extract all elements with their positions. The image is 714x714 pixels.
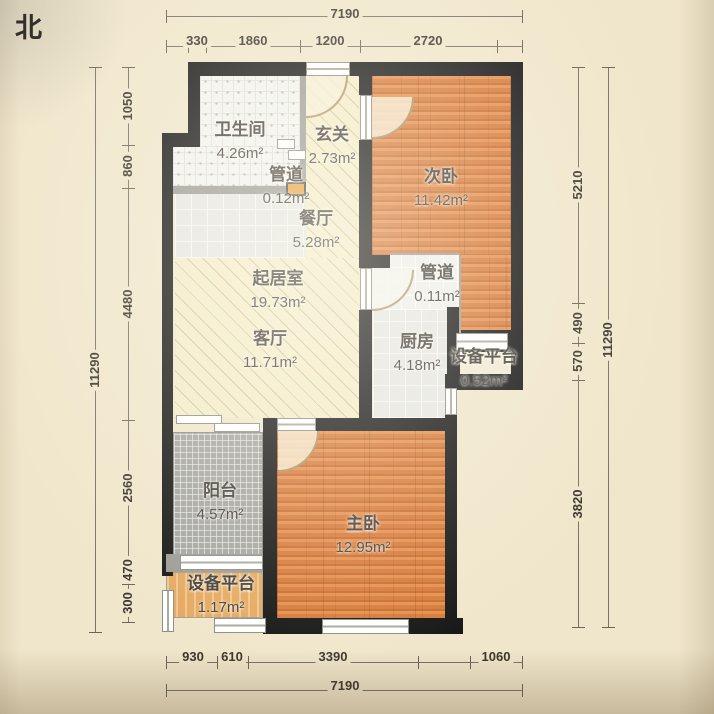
north-indicator: 北	[15, 6, 42, 45]
room-area: 0.52m²	[450, 373, 518, 388]
label-duct-top: 管道 0.12m²	[263, 166, 310, 206]
wall-right-upper	[511, 62, 523, 390]
dim-left-seg-4480: 4480	[121, 287, 135, 322]
label-platform-east: 设备平台 0.52m²	[450, 348, 518, 388]
dim-tick	[497, 40, 498, 53]
dim-tick	[122, 584, 135, 585]
dim-tick	[360, 40, 361, 53]
label-entry: 玄关 2.73m²	[309, 126, 356, 166]
dim-bottom-seg-610: 610	[218, 650, 246, 664]
label-bathroom: 卫生间 4.26m²	[215, 121, 266, 161]
entrance-door-leaf	[306, 62, 350, 76]
room-area: 0.12m²	[263, 191, 310, 206]
bedroom1-door-leaf	[277, 418, 316, 431]
dim-left-seg-300: 300	[121, 589, 135, 617]
wall-notch-step	[162, 133, 200, 147]
dim-tick	[602, 67, 615, 68]
wall-living-kitchen	[359, 310, 372, 420]
dim-tick	[122, 67, 135, 68]
label-platform-south: 设备平台 1.17m²	[187, 575, 255, 615]
room-area: 19.73m²	[250, 295, 305, 310]
dim-tick	[418, 656, 419, 669]
label-kitchen: 厨房 4.18m²	[394, 333, 441, 373]
wall-left	[162, 147, 173, 576]
platform-south-left-window	[162, 590, 174, 632]
dim-tick	[522, 40, 523, 53]
dim-tick	[166, 684, 167, 697]
dim-tick	[522, 10, 523, 23]
dim-tick	[572, 380, 585, 381]
dim-tick	[166, 40, 167, 53]
dim-tick	[166, 10, 167, 23]
room-area: 4.57m²	[197, 507, 244, 522]
room-area: 11.71m²	[243, 355, 297, 370]
floorplan-canvas: 北 卫生间	[0, 0, 714, 714]
dim-left-seg-line	[128, 67, 129, 622]
dim-tick	[122, 622, 135, 623]
dim-left-seg-860: 860	[121, 152, 135, 180]
balcony-bottom-window	[180, 555, 263, 570]
room-name: 卫生间	[215, 121, 266, 138]
dim-tick	[572, 627, 585, 628]
room-name: 阳台	[197, 482, 244, 499]
room-area: 11.42m²	[414, 193, 468, 208]
wall-duct-top	[372, 255, 390, 268]
dim-tick	[122, 145, 135, 146]
label-balcony: 阳台 4.57m²	[197, 482, 244, 522]
dim-left-seg-470: 470	[121, 556, 135, 584]
room-area: 4.18m²	[394, 358, 441, 373]
balcony-slider-pane-2	[214, 423, 260, 432]
dim-left-total: 11290	[88, 349, 102, 390]
dim-bottom-seg-3390: 3390	[316, 650, 351, 664]
bathroom-slider-pane-1	[277, 139, 295, 149]
dim-right-seg-3820: 3820	[571, 487, 585, 522]
dim-top-seg-2720: 2720	[411, 34, 446, 48]
dim-top-total: 7190	[328, 7, 363, 21]
dim-right-seg-490: 490	[571, 309, 585, 337]
room-area: 0.11m²	[414, 289, 460, 304]
room-name: 厨房	[394, 333, 441, 350]
label-duct-mid: 管道 0.11m²	[414, 264, 460, 304]
dim-tick	[89, 632, 102, 633]
dim-top-seg-1860: 1860	[236, 34, 271, 48]
wall-bedroom1-top	[316, 418, 457, 431]
dim-tick	[572, 303, 585, 304]
label-living-main: 起居室 19.73m²	[250, 270, 305, 310]
wall-entry-bedroom2-b	[359, 140, 372, 268]
dim-top-seg-330: 330	[183, 34, 211, 48]
room-area: 4.26m²	[215, 146, 266, 161]
dim-tick	[300, 40, 301, 53]
dim-tick	[572, 67, 585, 68]
room-area: 2.73m²	[309, 151, 356, 166]
room-name: 餐厅	[293, 210, 340, 227]
dim-bottom-seg-1060: 1060	[479, 650, 514, 664]
dim-tick	[522, 656, 523, 669]
room-name: 客厅	[243, 330, 297, 347]
bedroom2-door-leaf	[360, 95, 372, 140]
label-dining: 餐厅 5.28m²	[293, 210, 340, 250]
dim-tick	[602, 627, 615, 628]
dim-right-seg-5210: 5210	[571, 168, 585, 203]
room-name: 次卧	[414, 168, 468, 185]
dim-tick	[470, 656, 471, 669]
dim-tick	[572, 343, 585, 344]
room-name: 设备平台	[187, 575, 255, 592]
dim-tick	[122, 188, 135, 189]
dim-tick	[122, 420, 135, 421]
dim-top-seg-1200: 1200	[313, 34, 348, 48]
room-area: 5.28m²	[293, 235, 340, 250]
room-name: 管道	[414, 264, 460, 281]
floor-bedroom-second-ext	[460, 255, 511, 333]
bathroom-slider-pane-2	[288, 150, 306, 160]
kitchen-right-window	[445, 388, 457, 415]
dim-tick	[522, 684, 523, 697]
dim-bottom-total: 7190	[328, 679, 363, 693]
dim-tick	[166, 656, 167, 669]
room-name: 主卧	[335, 515, 390, 532]
dim-tick	[248, 656, 249, 669]
dim-left-seg-1050: 1050	[121, 89, 135, 124]
dim-right-seg-570: 570	[571, 347, 585, 375]
room-area: 1.17m²	[187, 600, 255, 615]
bedroom1-bottom-window	[322, 619, 409, 634]
wall-duct-thin-top	[390, 253, 460, 255]
wall-top-right	[350, 62, 523, 76]
label-bedroom-second: 次卧 11.42m²	[414, 168, 468, 208]
dim-tick	[89, 67, 102, 68]
wall-top-left	[200, 62, 306, 76]
dim-right-total: 11290	[601, 319, 615, 360]
platform-south-bottom-window	[214, 618, 266, 633]
room-name: 管道	[263, 166, 310, 183]
label-living: 客厅 11.71m²	[243, 330, 297, 370]
dim-bottom-seg-930: 930	[179, 650, 207, 664]
wall-bedroom1-left	[263, 418, 277, 634]
dim-left-seg-2560: 2560	[121, 471, 135, 506]
room-name: 起居室	[250, 270, 305, 287]
wall-entry-bedroom2-a	[359, 76, 372, 95]
label-bedroom-master: 主卧 12.95m²	[335, 515, 390, 555]
room-name: 玄关	[309, 126, 356, 143]
room-name: 设备平台	[450, 348, 518, 365]
room-area: 12.95m²	[335, 540, 390, 555]
kitchen-door-leaf	[360, 268, 372, 310]
